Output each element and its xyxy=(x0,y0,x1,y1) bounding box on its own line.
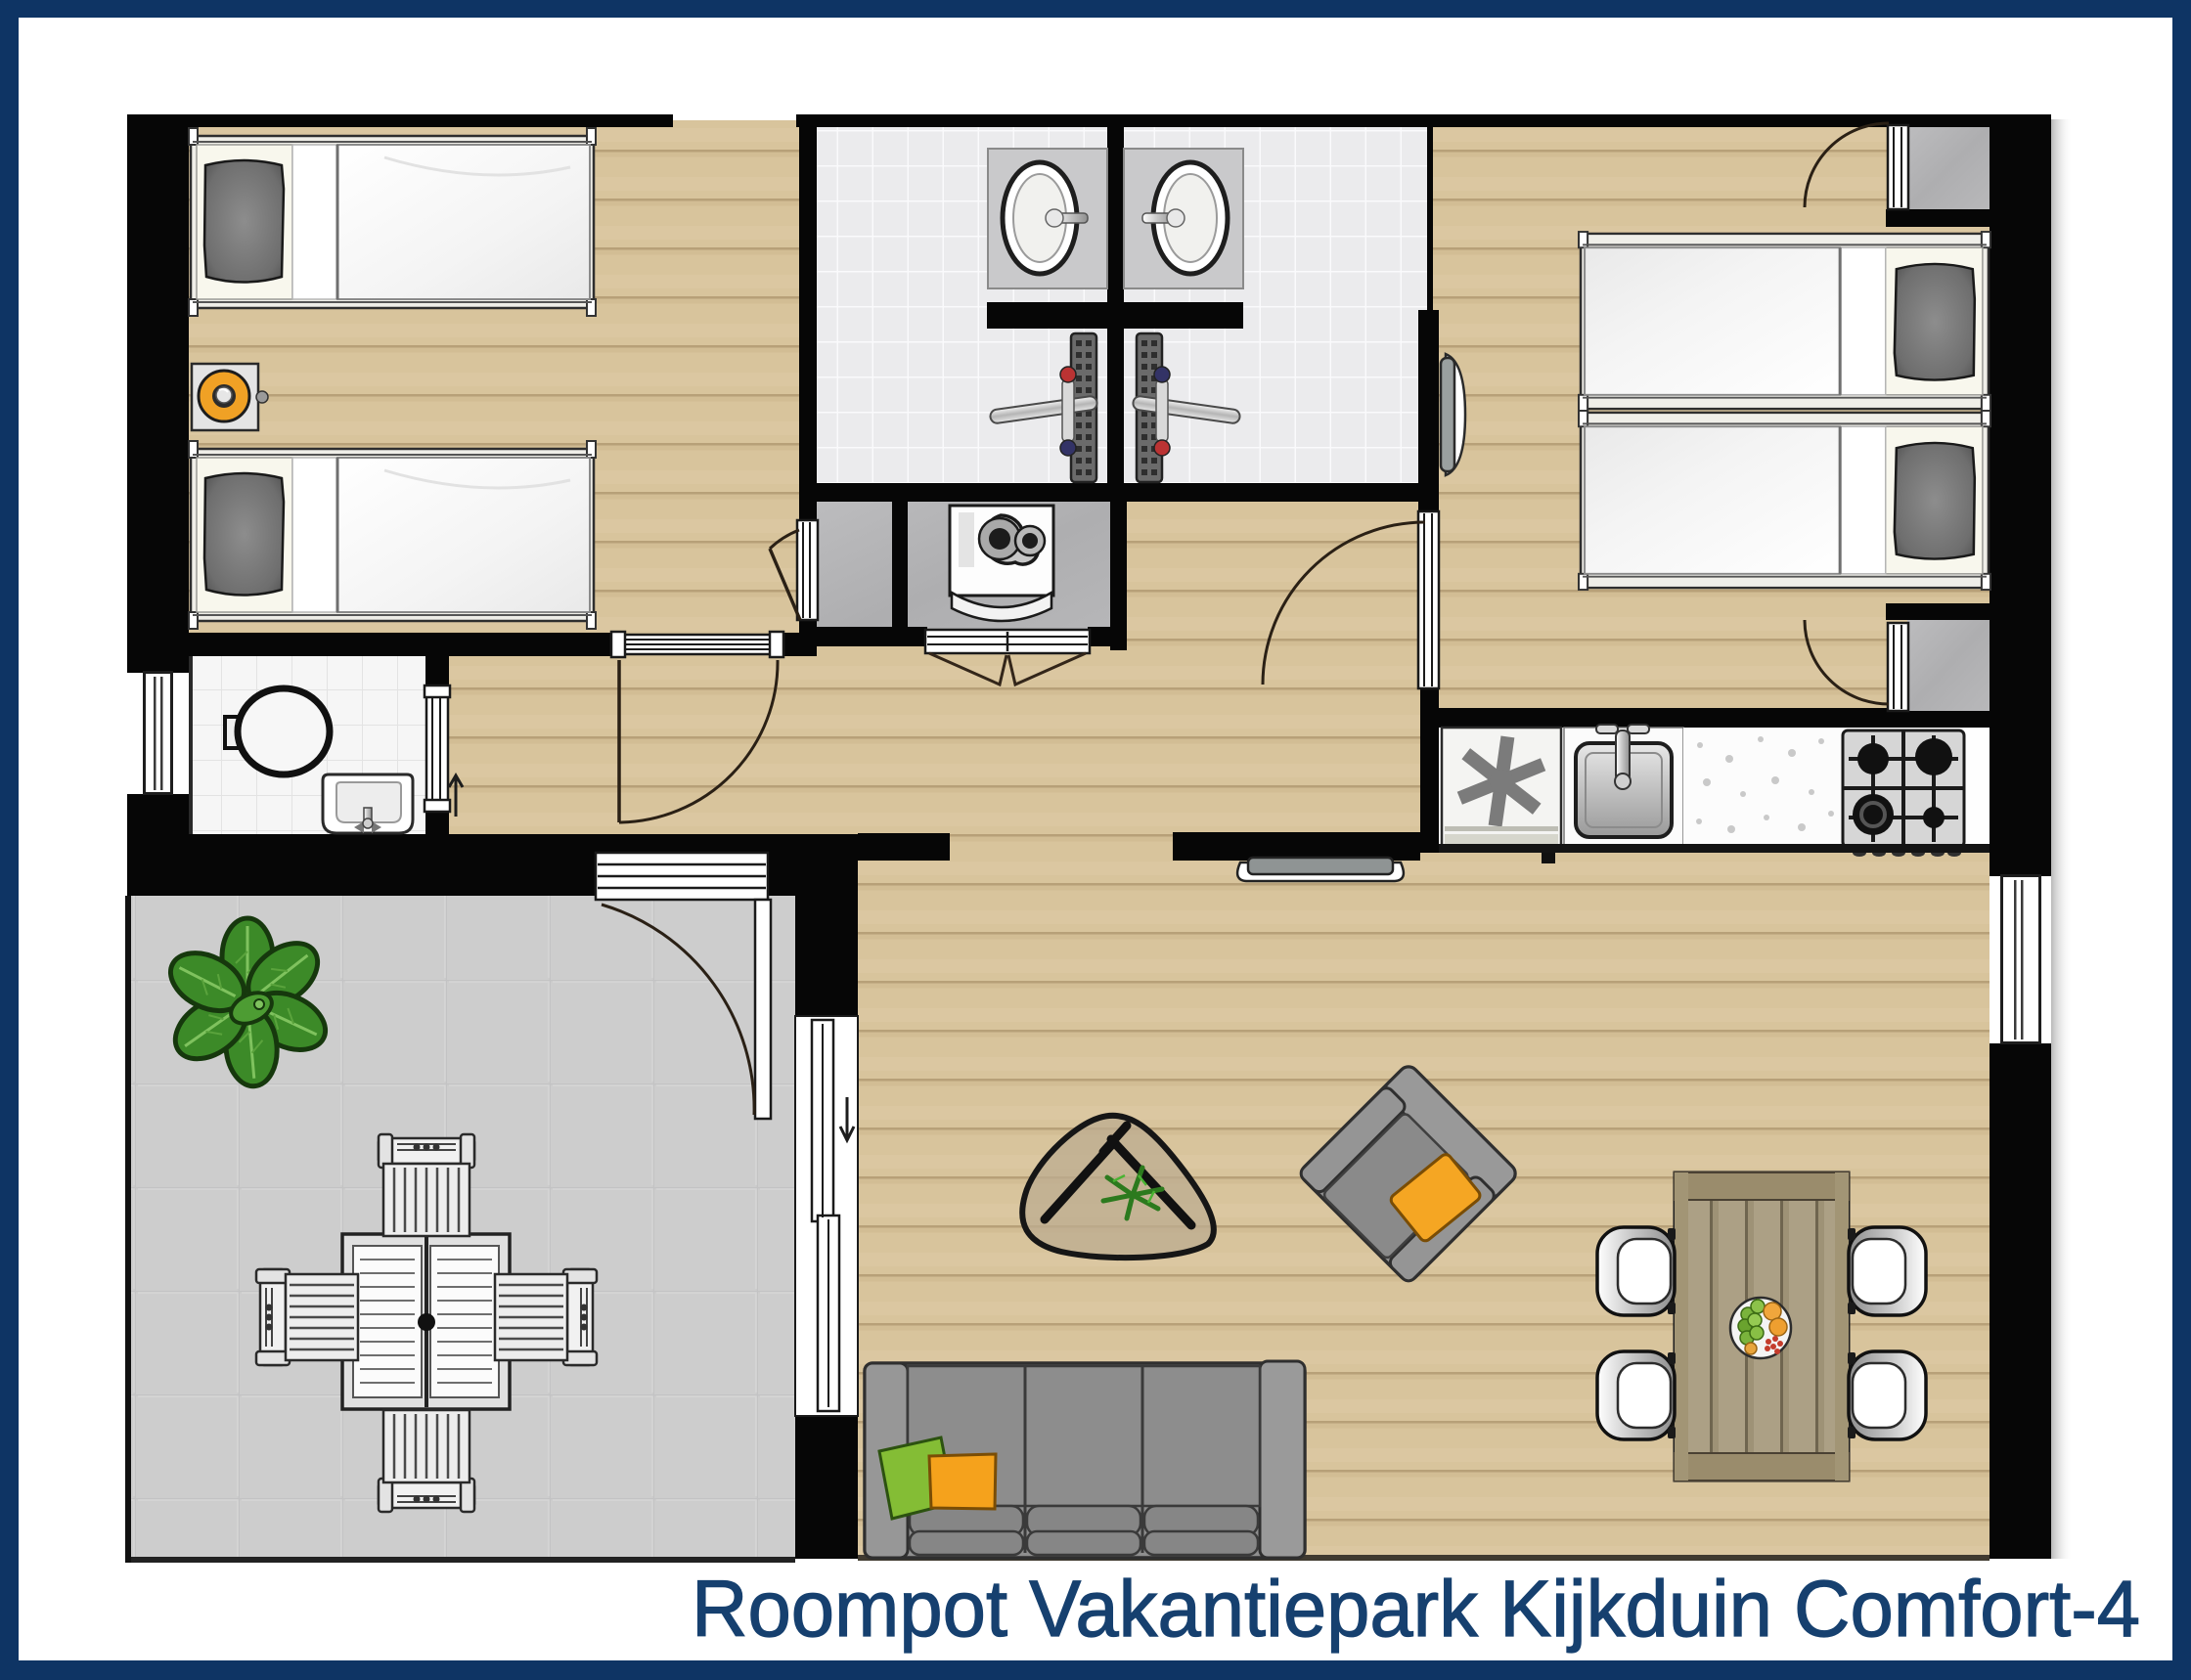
svg-text:Roompot Vakantiepark Kijkduin: Roompot Vakantiepark Kijkduin Comfort-4 xyxy=(692,1565,2140,1654)
